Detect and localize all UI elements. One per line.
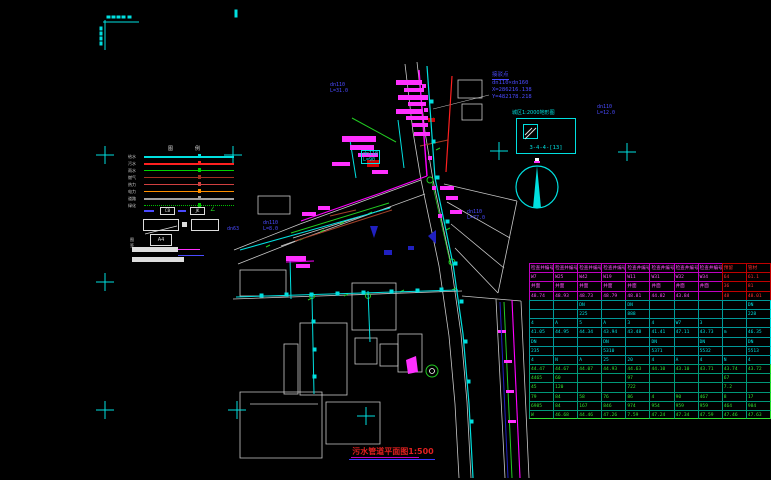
legend-row-line — [144, 156, 234, 158]
table-row: 2355310537155325513 — [529, 346, 771, 355]
legend-row: 电力 — [128, 188, 236, 195]
table-cell: 46.68 — [553, 410, 577, 419]
table-cell — [674, 373, 698, 382]
table-cell: 76 — [601, 392, 625, 401]
table-cell — [649, 382, 673, 391]
legend-row-label: 污水 — [128, 160, 143, 167]
table-cell — [601, 382, 625, 391]
legend-blue-line — [178, 255, 204, 256]
table-cell: 检查井编号 — [698, 263, 722, 272]
legend-symbol-box-2: JK — [190, 207, 205, 215]
table-cell: 48.01 — [746, 291, 771, 300]
table-cell: 48.73 — [577, 291, 601, 300]
table-cell: 43.10 — [674, 364, 698, 373]
table-cell — [722, 318, 746, 327]
table-cell — [674, 337, 698, 346]
table-cell — [722, 300, 746, 309]
table-cell: 43.84 — [674, 291, 698, 300]
title-underline-magenta — [351, 457, 419, 458]
table-cell: 4 — [529, 355, 553, 364]
table-cell: 5371 — [649, 346, 673, 355]
table-cell: 235 — [529, 346, 553, 355]
table-cell: 41.41 — [649, 327, 673, 336]
title-underline-blue — [349, 459, 435, 460]
table-cell — [625, 337, 649, 346]
table-cell: 25 — [601, 355, 625, 364]
detail-box-caption: 城区1:2000地形图 — [512, 109, 555, 116]
table-cell — [553, 346, 577, 355]
legend: 图例 给水污水雨水燃气热力电力道路绿化 CB JK ∠ 图签 A4 — [128, 145, 238, 265]
table-row: W46.6844.4647.267.5947.2447.3447.5947.46… — [529, 410, 771, 419]
table-cell: 48 — [722, 291, 746, 300]
table-cell: 81 — [746, 281, 771, 290]
point-label: 接驳点 — [492, 72, 509, 80]
table-cell — [746, 318, 771, 327]
table-cell: 47.34 — [674, 410, 698, 419]
legend-diagonal-box — [143, 219, 179, 231]
table-row: DNDNDN — [529, 300, 771, 309]
table-cell — [698, 291, 722, 300]
table-cell: 959 — [698, 401, 722, 410]
legend-row-line — [144, 205, 234, 206]
table-cell: 7.59 — [625, 410, 649, 419]
manhole-data-table: 检查井编号检查井编号检查井编号检查井编号检查井编号检查井编号检查井编号检查井编号… — [529, 263, 771, 419]
legend-row-line — [144, 198, 234, 200]
table-cell: W — [529, 410, 553, 419]
table-cell: 48.79 — [601, 291, 625, 300]
table-cell: 5 — [577, 318, 601, 327]
pipe-label: dn63 — [227, 226, 239, 232]
table-cell: 5513 — [746, 346, 771, 355]
legend-row-label: 电力 — [128, 188, 143, 195]
table-cell — [529, 309, 553, 318]
scale-value-box: A4 — [150, 234, 172, 246]
table-cell: 7.2 — [722, 382, 746, 391]
drawing-title: 污水管道平面图1:500 — [338, 446, 448, 457]
table-cell: 44.63 — [625, 364, 649, 373]
legend-row-tick — [198, 161, 201, 165]
table-row: 41.0544.9544.3443.9443.4841.4147.1143.73… — [529, 327, 771, 336]
table-cell: 167 — [577, 401, 601, 410]
table-cell — [577, 337, 601, 346]
pipe-size-label: dn110×dn160 — [492, 80, 532, 87]
x-coordinate: X=286216.138 — [492, 87, 532, 94]
legend-row-tick — [198, 189, 201, 193]
table-cell: 97 — [625, 373, 649, 382]
table-cell: 48.93 — [553, 291, 577, 300]
table-cell: 60 — [553, 373, 577, 382]
table-cell: A — [601, 318, 625, 327]
table-cell: W31 — [649, 272, 673, 281]
table-cell — [722, 346, 746, 355]
legend-row: 雨水 — [128, 167, 236, 174]
table-cell: 44.67 — [553, 364, 577, 373]
table-cell: A — [674, 355, 698, 364]
table-cell: 48.81 — [625, 291, 649, 300]
table-cell: 井面 — [698, 281, 722, 290]
table-cell — [722, 309, 746, 318]
table-cell: 79 — [529, 392, 553, 401]
legend-shape-row — [128, 219, 236, 231]
table-cell: 64 — [722, 272, 746, 281]
table-cell: 954 — [649, 401, 673, 410]
table-cell: W11 — [625, 272, 649, 281]
table-cell: 974 — [625, 401, 649, 410]
table-cell — [722, 337, 746, 346]
table-cell: 4465 — [529, 373, 553, 382]
table-cell: 4 — [746, 355, 771, 364]
table-cell: 检查井编号 — [529, 263, 553, 272]
table-cell — [577, 382, 601, 391]
table-row: 检查井编号检查井编号检查井编号检查井编号检查井编号检查井编号检查井编号检查井编号… — [529, 263, 771, 272]
table-cell: 43.94 — [601, 327, 625, 336]
table-row: 7984587686490467817 — [529, 392, 771, 401]
table-cell: 225 — [577, 309, 601, 318]
legend-row: 道路 — [128, 195, 236, 202]
table-cell: 47.46 — [722, 410, 746, 419]
table-cell — [601, 300, 625, 309]
table-cell — [649, 300, 673, 309]
pipe-label: dn110L=12.0 — [597, 104, 615, 116]
legend-row-label: 道路 — [128, 195, 143, 202]
table-row: DNDNDNDNDN — [529, 337, 771, 346]
table-cell — [577, 346, 601, 355]
table-cell: 43.74 — [722, 364, 746, 373]
table-cell: 84 — [553, 401, 577, 410]
table-cell: W25 — [553, 272, 577, 281]
pipe-label: dn110L=8.0 — [263, 220, 278, 232]
table-cell: 检查井编号 — [674, 263, 698, 272]
table-cell: DN — [601, 337, 625, 346]
legend-row: 污水 — [128, 160, 236, 167]
table-row: 48.7448.9348.7348.7948.8144.8243.844848.… — [529, 291, 771, 300]
table-cell: 120 — [553, 382, 577, 391]
table-cell — [674, 300, 698, 309]
legend-row-tick — [198, 182, 201, 186]
legend-row-line — [144, 170, 234, 171]
table-cell: N — [553, 355, 577, 364]
legend-symbol-box-1: CB — [160, 207, 175, 215]
table-cell: 预留 — [722, 263, 746, 272]
table-cell — [529, 300, 553, 309]
table-cell: 5532 — [698, 346, 722, 355]
table-cell: 检查井编号 — [601, 263, 625, 272]
table-cell: 84 — [553, 392, 577, 401]
table-row: 44.4744.6744.0744.9344.6344.1043.1043.71… — [529, 364, 771, 373]
y-coordinate: Y=482178.218 — [492, 94, 532, 101]
sheet-reference-box: 3-4-4-[13] — [516, 118, 576, 154]
table-cell: 44.46 — [577, 410, 601, 419]
legend-row-tick — [198, 196, 201, 200]
legend-dash-1 — [144, 210, 154, 212]
table-cell: 8 — [722, 392, 746, 401]
table-cell: 722 — [625, 382, 649, 391]
table-cell: 46.35 — [746, 327, 771, 336]
table-cell: W42 — [577, 272, 601, 281]
table-cell: 846 — [601, 401, 625, 410]
table-cell: 47.26 — [601, 410, 625, 419]
table-cell: 45 — [529, 382, 553, 391]
legend-row-tick — [198, 154, 201, 158]
table-cell: 检查井编号 — [577, 263, 601, 272]
table-cell: 48.74 — [529, 291, 553, 300]
table-cell: 44.10 — [649, 364, 673, 373]
table-row: 451207227.2 — [529, 382, 771, 391]
table-cell: 47.59 — [698, 410, 722, 419]
cyan-pipes — [236, 66, 473, 478]
table-cell — [746, 382, 771, 391]
table-cell: DN — [577, 300, 601, 309]
legend-row: 燃气 — [128, 174, 236, 181]
table-cell — [553, 337, 577, 346]
table-cell: 井面 — [649, 281, 673, 290]
table-cell: 47.11 — [674, 327, 698, 336]
table-row: 225888228 — [529, 309, 771, 318]
table-cell: A — [577, 355, 601, 364]
table-cell: 467 — [698, 392, 722, 401]
table-cell: 管材 — [746, 263, 771, 272]
table-cell: 44.82 — [649, 291, 673, 300]
legend-header: 图例 — [168, 145, 222, 152]
table-cell: 67 — [722, 373, 746, 382]
table-cell — [674, 382, 698, 391]
magenta-pipes — [286, 70, 520, 478]
table-row: 4A5A34W73 — [529, 318, 771, 327]
legend-row: 热力 — [128, 181, 236, 188]
table-cell: 90 — [674, 392, 698, 401]
table-cell: N — [722, 355, 746, 364]
table-cell — [601, 373, 625, 382]
pipe-label: dn110L=31.0 — [330, 82, 348, 94]
table-cell: 888 — [625, 309, 649, 318]
table-cell — [601, 309, 625, 318]
table-cell: 47.24 — [649, 410, 673, 419]
sheet-corner-mark — [100, 10, 237, 50]
pipe-label: dn110L=90 — [361, 150, 380, 164]
legend-row-line — [144, 163, 234, 165]
table-row: 井面井面井面井面井面井面井面井面3681 — [529, 281, 771, 290]
table-cell — [649, 373, 673, 382]
table-cell — [553, 300, 577, 309]
legend-row-tick — [198, 168, 201, 172]
table-cell: 井面 — [577, 281, 601, 290]
table-cell: 959 — [674, 401, 698, 410]
table-cell: 228 — [746, 309, 771, 318]
legend-row-line — [144, 191, 234, 192]
table-cell: 4 — [698, 355, 722, 364]
legend-row-line — [144, 177, 234, 178]
table-cell — [698, 382, 722, 391]
table-cell — [698, 309, 722, 318]
blue-fills — [370, 226, 508, 478]
table-cell: 44.95 — [553, 327, 577, 336]
legend-row-label: 燃气 — [128, 174, 143, 181]
table-cell: DN — [698, 337, 722, 346]
connection-point-callout: 接驳点 dn110×dn160 X=286216.138 Y=482178.21… — [492, 72, 532, 101]
table-cell: A — [553, 318, 577, 327]
table-cell: W7 — [674, 318, 698, 327]
table-cell: 44.93 — [601, 364, 625, 373]
table-cell: 47.63 — [746, 410, 771, 419]
legend-symbols-row: CB JK ∠ — [128, 207, 236, 215]
table-cell: 井面 — [674, 281, 698, 290]
pipe-label: dn110L=77.0 — [467, 209, 485, 221]
table-cell — [698, 300, 722, 309]
table-cell: 井面 — [601, 281, 625, 290]
table-cell: 检查井编号 — [649, 263, 673, 272]
legend-bar-2 — [132, 257, 184, 262]
table-cell: m — [722, 327, 746, 336]
table-row: 4465609767 — [529, 373, 771, 382]
legend-dash-2 — [178, 210, 186, 212]
table-cell: 43.73 — [698, 327, 722, 336]
table-cell: 4 — [649, 392, 673, 401]
legend-row-line — [144, 184, 234, 185]
table-cell: 4 — [649, 355, 673, 364]
legend-row-label: 给水 — [128, 153, 143, 160]
table-cell: 井面 — [553, 281, 577, 290]
table-cell: 17 — [746, 392, 771, 401]
table-cell: DN — [649, 337, 673, 346]
table-cell: 43.48 — [625, 327, 649, 336]
table-cell: 44.07 — [577, 364, 601, 373]
legend-row: 给水 — [128, 153, 236, 160]
north-arrow — [510, 158, 564, 212]
table-cell: 36 — [722, 281, 746, 290]
table-cell: 464 — [722, 401, 746, 410]
table-cell: 61.1 — [746, 272, 771, 281]
legend-row-label: 雨水 — [128, 167, 143, 174]
legend-line-rows: 给水污水雨水燃气热力电力道路绿化 — [128, 153, 236, 209]
table-cell: DN — [625, 300, 649, 309]
table-cell — [625, 346, 649, 355]
table-cell: 检查井编号 — [625, 263, 649, 272]
table-cell: 检查井编号 — [553, 263, 577, 272]
table-row: 698584167846974954959959464984 — [529, 401, 771, 410]
table-cell: DN — [746, 300, 771, 309]
hatch-icon — [523, 124, 538, 139]
sheet-number: 3-4-4-[13] — [517, 145, 575, 151]
table-cell — [577, 373, 601, 382]
table-cell: 井面 — [529, 281, 553, 290]
green-utility-lines — [266, 118, 512, 478]
table-cell: 44.47 — [529, 364, 553, 373]
roads-buildings — [233, 62, 529, 478]
table-row: 4NA25204A4N4 — [529, 355, 771, 364]
table-cell: 984 — [746, 401, 771, 410]
table-cell: 4 — [529, 318, 553, 327]
table-cell: W34 — [698, 272, 722, 281]
table-cell — [649, 309, 673, 318]
table-row: W7W25W42W19W11W31W32W346461.1 — [529, 272, 771, 281]
table-cell: 20 — [625, 355, 649, 364]
table-cell: 86 — [625, 392, 649, 401]
table-cell: 5310 — [601, 346, 625, 355]
table-cell — [746, 373, 771, 382]
table-cell — [698, 373, 722, 382]
table-cell — [553, 309, 577, 318]
cad-drawing-canvas[interactable]: 接驳点 dn110×dn160 X=286216.138 Y=482178.21… — [0, 0, 771, 480]
table-cell: 3 — [698, 318, 722, 327]
legend-magenta-line — [178, 249, 200, 250]
table-cell: 4 — [649, 318, 673, 327]
table-cell — [674, 309, 698, 318]
table-cell: DN — [529, 337, 553, 346]
table-cell: DN — [746, 337, 771, 346]
table-cell: 6985 — [529, 401, 553, 410]
table-cell: 43.72 — [746, 364, 771, 373]
table-cell: 3 — [625, 318, 649, 327]
table-cell: W19 — [601, 272, 625, 281]
legend-angle-symbol: ∠ — [210, 206, 215, 213]
legend-row-tick — [198, 175, 201, 179]
legend-row-label: 热力 — [128, 181, 143, 188]
legend-bar-1 — [132, 247, 178, 252]
legend-outline-rect — [191, 219, 219, 231]
table-cell: W32 — [674, 272, 698, 281]
table-cell: 井面 — [625, 281, 649, 290]
table-cell: 41.05 — [529, 327, 553, 336]
table-cell: 58 — [577, 392, 601, 401]
table-cell: 44.34 — [577, 327, 601, 336]
table-cell: 43.71 — [698, 364, 722, 373]
table-cell: W7 — [529, 272, 553, 281]
table-cell — [674, 346, 698, 355]
legend-filled-square — [182, 222, 187, 227]
